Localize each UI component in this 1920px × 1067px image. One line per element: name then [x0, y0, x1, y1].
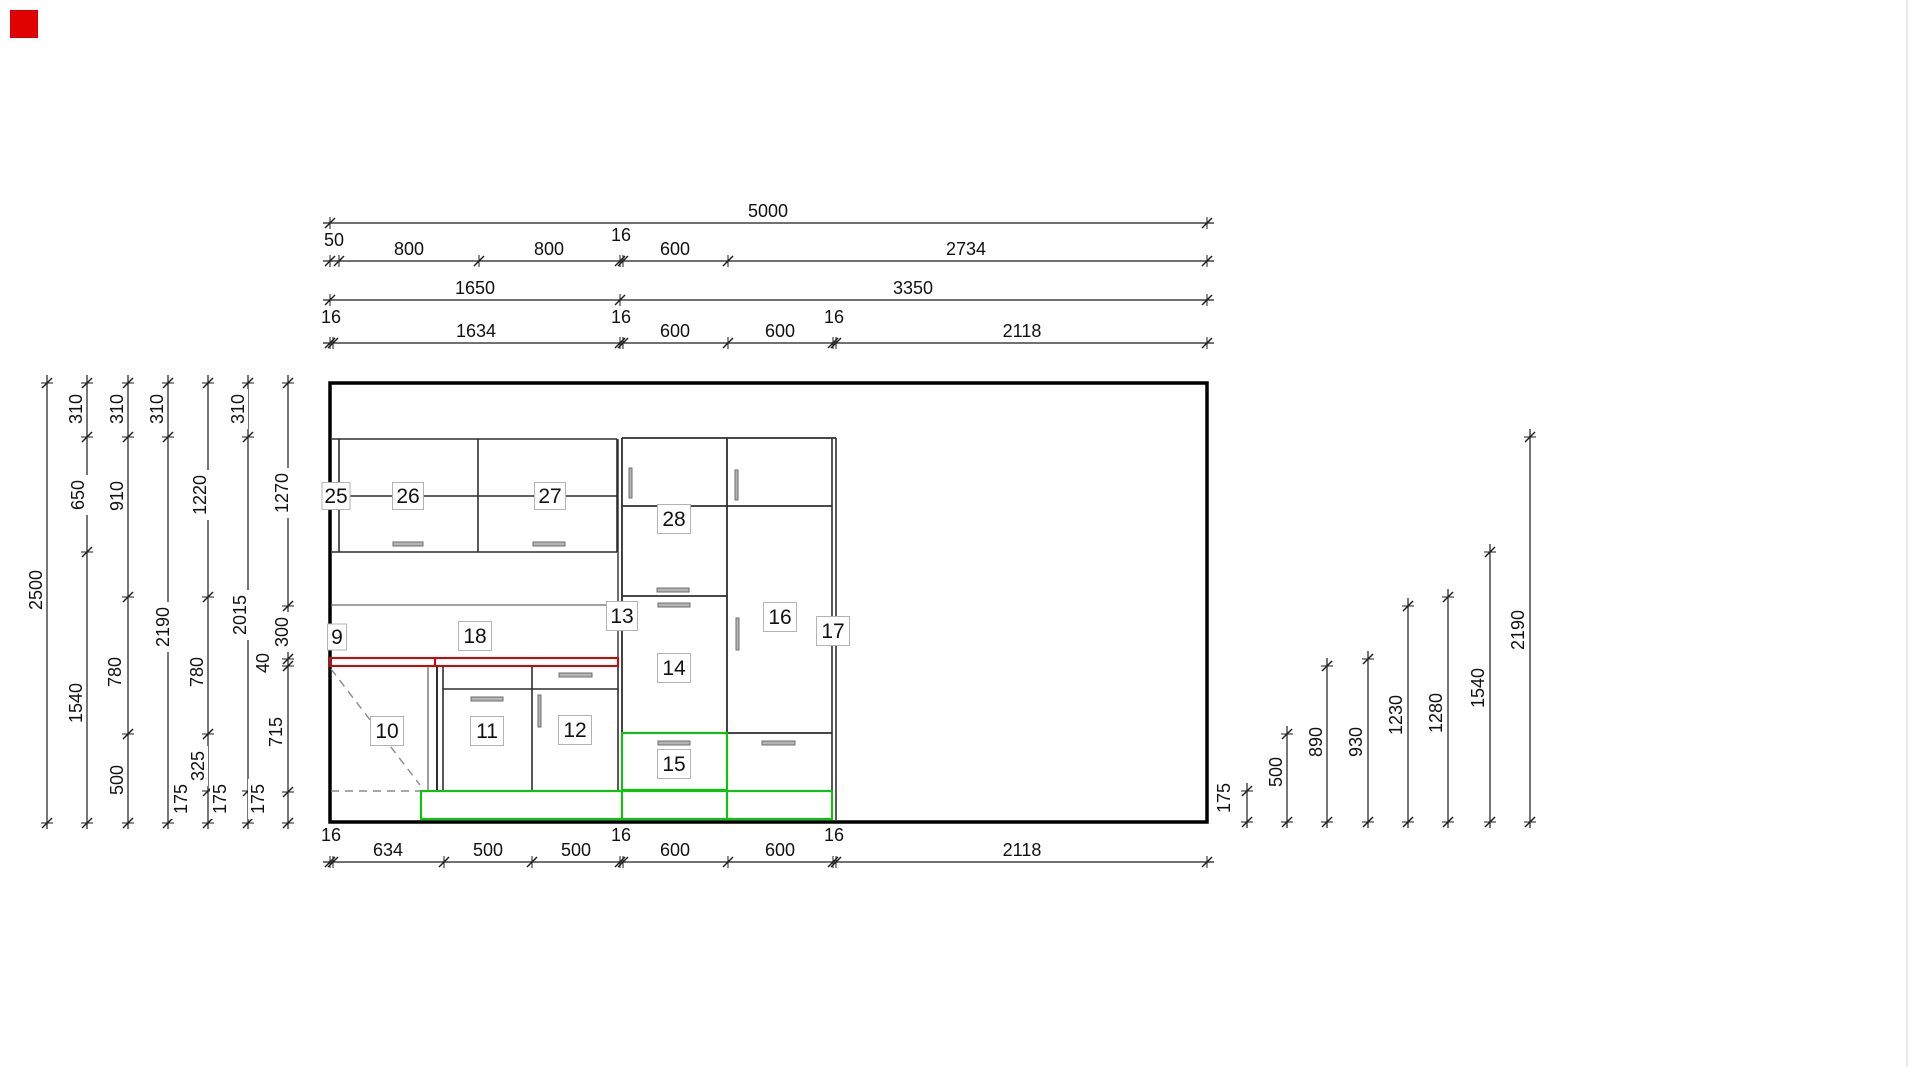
dim-label-rotated: 2500	[26, 565, 46, 615]
dim-label: 930	[1346, 727, 1366, 757]
dim-label: 2118	[1003, 840, 1042, 860]
dim-right-500: 500	[1266, 726, 1293, 828]
dim-label: 500	[1266, 757, 1286, 787]
plinth-highlight[interactable]	[421, 791, 832, 819]
dim-left-4: 3102190	[147, 375, 174, 829]
dim-label: 600	[765, 840, 795, 860]
dim-label: 1230	[1386, 695, 1406, 735]
countertop-left[interactable]	[330, 658, 435, 666]
dim-right-175: 175	[1214, 778, 1253, 828]
dim-label: 2734	[946, 239, 986, 259]
dim-label: 780	[187, 657, 207, 687]
dim-label: 310	[228, 394, 248, 424]
dim-label-rotated: 910	[107, 476, 127, 516]
dim-label: 300	[272, 617, 292, 647]
item-label-text: 25	[324, 485, 347, 508]
dim-label-rotated: 1540	[66, 678, 86, 728]
dim-label: 2190	[153, 607, 173, 647]
item-label-15[interactable]: 15	[658, 750, 691, 779]
dim-label: 50	[324, 230, 344, 250]
dim-label-rotated: 780	[187, 652, 207, 692]
kitchen-elevation-drawing: 5000508008001660027341650335016163416600…	[0, 0, 1920, 1067]
dim-label-rotated: 175	[1214, 778, 1234, 818]
dim-label: 325	[188, 751, 208, 781]
item-label-text: 14	[662, 657, 686, 680]
dim-label: 175	[248, 784, 268, 814]
dim-label: 16	[611, 307, 631, 327]
cabinet-handle	[538, 695, 541, 727]
item-label-11[interactable]: 11	[471, 717, 504, 746]
item-label-18[interactable]: 18	[459, 622, 492, 651]
item-label-28[interactable]: 28	[658, 505, 691, 534]
dim-label: 1220	[190, 475, 210, 515]
item-label-text: 13	[610, 605, 633, 628]
dim-right-1280: 1280	[1426, 589, 1454, 828]
dim-label: 1280	[1426, 693, 1446, 733]
dim-label: 500	[473, 840, 503, 860]
cad-canvas: 5000508008001660027341650335016163416600…	[0, 0, 1920, 1067]
dim-label: 16	[321, 825, 341, 845]
item-label-9[interactable]: 9	[328, 624, 347, 650]
cabinet-handle	[658, 741, 690, 745]
dim-label: 175	[210, 784, 230, 814]
dim-label: 715	[266, 717, 286, 747]
dim-label: 1540	[1468, 668, 1488, 708]
dim-label: 16	[824, 307, 844, 327]
dim-label-rotated: 175	[210, 779, 230, 819]
dim-label-rotated: 1540	[1468, 663, 1488, 713]
cabinet-handle	[533, 542, 565, 546]
item-label-10[interactable]: 10	[371, 717, 404, 746]
dim-label: 5000	[748, 201, 788, 221]
item-label-text: 12	[563, 719, 586, 742]
item-label-27[interactable]: 27	[535, 483, 566, 510]
dim-label-rotated: 890	[1306, 722, 1326, 762]
dim-label: 600	[660, 239, 690, 259]
item-label-13[interactable]: 13	[607, 602, 638, 631]
dim-label: 910	[107, 481, 127, 511]
dim-top-row2: 50800800166002734	[323, 225, 1214, 267]
cabinet-handle	[735, 470, 738, 500]
dim-label: 175	[171, 784, 191, 814]
dim-left-1: 2500	[26, 375, 53, 829]
cabinet-handle	[657, 588, 689, 592]
dim-label: 16	[611, 825, 631, 845]
dim-label: 16	[611, 225, 631, 245]
dim-label: 2015	[230, 595, 250, 635]
dim-label-rotated: 175	[171, 779, 191, 819]
dim-label: 2118	[1003, 321, 1042, 341]
dim-label-rotated: 715	[266, 712, 286, 752]
dim-left-6: 3102015175	[210, 375, 254, 829]
dim-right-2190: 2190	[1508, 429, 1536, 828]
dim-label-rotated: 650	[68, 475, 88, 515]
dim-label-rotated: 2190	[153, 602, 173, 652]
dim-label: 16	[824, 825, 844, 845]
dim-right-890: 890	[1306, 658, 1333, 828]
dim-label-rotated: 300	[272, 612, 292, 652]
dim-label: 890	[1306, 727, 1326, 757]
item-label-text: 28	[662, 508, 685, 531]
item-label-text: 26	[396, 485, 419, 508]
dim-left-7: 127030040715175	[248, 375, 294, 829]
dim-label-rotated: 1270	[272, 468, 292, 518]
dim-label: 500	[107, 765, 127, 795]
dim-label: 2500	[26, 570, 46, 610]
cabinet-handle	[736, 618, 739, 650]
dim-left-3: 310910780500	[105, 375, 134, 829]
item-label-16[interactable]: 16	[764, 603, 797, 632]
dim-top-row3: 16503350	[323, 278, 1214, 306]
item-label-text: 27	[538, 485, 561, 508]
dim-label: 800	[394, 239, 424, 259]
dim-label: 1540	[66, 683, 86, 723]
dim-label: 175	[1214, 783, 1234, 813]
dim-top-row4: 16163416600600162118	[321, 307, 1214, 349]
dim-label: 634	[373, 840, 403, 860]
dim-label: 1650	[455, 278, 495, 298]
dim-label-rotated: 930	[1346, 722, 1366, 762]
dim-label-rotated: 500	[1266, 752, 1286, 792]
dim-label: 2190	[1508, 610, 1528, 650]
item-label-26[interactable]: 26	[393, 483, 424, 510]
item-label-text: 10	[375, 720, 398, 743]
dim-bottom: 1663450050016600600162118	[321, 825, 1214, 868]
dim-right-1540: 1540	[1468, 544, 1496, 828]
dim-label: 310	[147, 394, 167, 424]
item-label-25[interactable]: 25	[322, 483, 350, 510]
dim-label-rotated: 310	[147, 389, 167, 429]
dim-right-930: 930	[1346, 651, 1374, 828]
dim-label: 600	[765, 321, 795, 341]
dim-label-rotated: 310	[107, 389, 127, 429]
dim-label: 16	[321, 307, 341, 327]
cabinet-handle	[762, 741, 795, 745]
dim-label: 40	[253, 653, 273, 673]
dim-top-overall: 5000	[323, 201, 1214, 229]
dim-label: 310	[66, 394, 86, 424]
record-marker	[10, 10, 38, 38]
dim-left-5: 1220780325175	[171, 375, 214, 829]
item-label-text: 9	[331, 626, 343, 649]
dim-label-rotated: 500	[107, 760, 127, 800]
cabinet-handle	[471, 697, 503, 701]
dim-label: 500	[561, 840, 591, 860]
item-label-text: 11	[476, 720, 498, 743]
dim-right-1230: 1230	[1386, 598, 1414, 828]
cabinet-handle	[559, 673, 592, 677]
item-label-text: 17	[821, 620, 844, 643]
dim-left-2: 3106501540	[66, 375, 93, 829]
cabinet-handle	[629, 468, 632, 498]
dim-label-rotated: 1230	[1386, 690, 1406, 740]
cabinet-handle	[393, 542, 423, 546]
countertop-right[interactable]	[435, 658, 618, 666]
item-label-text: 16	[768, 606, 791, 629]
dim-label: 600	[660, 321, 690, 341]
dim-label: 650	[68, 480, 88, 510]
dim-label: 600	[660, 840, 690, 860]
dim-label-rotated: 780	[105, 652, 125, 692]
dim-label-rotated: 310	[228, 389, 248, 429]
dim-label: 780	[105, 657, 125, 687]
dim-label: 1634	[456, 321, 496, 341]
dim-label: 1270	[272, 473, 292, 513]
dim-label-rotated: 1280	[1426, 688, 1446, 738]
dim-label-rotated: 40	[253, 648, 273, 678]
dim-label: 310	[107, 394, 127, 424]
dim-label-rotated: 2015	[230, 590, 250, 640]
dim-label: 800	[534, 239, 564, 259]
dim-label-rotated: 1220	[190, 470, 210, 520]
item-label-12[interactable]: 12	[559, 716, 592, 745]
item-label-text: 15	[662, 753, 685, 776]
dim-label-rotated: 2190	[1508, 605, 1528, 655]
cabinet-handle	[658, 603, 690, 607]
dim-label-rotated: 310	[66, 389, 86, 429]
dim-label-rotated: 175	[248, 779, 268, 819]
item-label-text: 18	[463, 625, 486, 648]
item-label-14[interactable]: 14	[658, 654, 691, 683]
dim-label: 3350	[893, 278, 933, 298]
item-label-17[interactable]: 17	[817, 617, 850, 646]
